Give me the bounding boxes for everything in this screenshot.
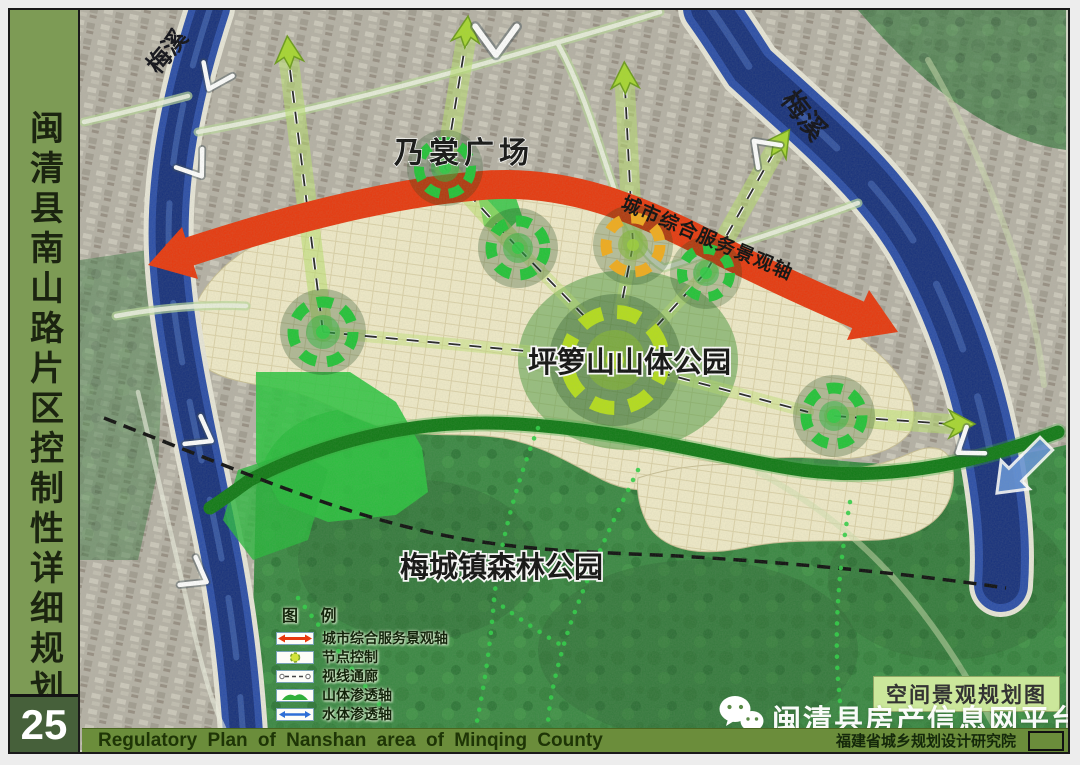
node-circle-icon — [276, 651, 314, 664]
bottom-bar: Regulatory Plan of Nanshan area of Minqi… — [82, 728, 1068, 752]
institute-name: 福建省城乡规划设计研究院 — [836, 729, 1016, 752]
legend-item-sight-corridor: 视线通廊 — [276, 669, 466, 683]
legend-item-label: 视线通廊 — [322, 666, 378, 686]
legend-item-label: 水体渗透轴 — [322, 704, 392, 724]
legend-item-water-axis: 水体渗透轴 — [276, 707, 466, 721]
green-mound-icon — [276, 689, 314, 702]
left-title-bar: 闽清县南山路片区控制性详细规划 25 — [10, 10, 80, 752]
map-area: 城市综合服务景观轴 乃裳广场 坪箩山山体公园 梅城镇森林公园 梅溪 梅溪 图 例… — [80, 10, 1068, 752]
red-double-arrow-icon — [276, 632, 314, 645]
legend-item-node-control: 节点控制 — [276, 650, 466, 664]
legend-item-label: 山体渗透轴 — [322, 685, 392, 705]
end-box — [1028, 731, 1064, 751]
plan-title-vertical: 闽清县南山路片区控制性详细规划 — [20, 110, 69, 710]
legend-item-mountain-axis: 山体渗透轴 — [276, 688, 466, 702]
page-frame: 城市综合服务景观轴 乃裳广场 坪箩山山体公园 梅城镇森林公园 梅溪 梅溪 图 例… — [8, 8, 1070, 754]
english-title: Regulatory Plan of Nanshan area of Minqi… — [98, 729, 603, 752]
planning-map: 城市综合服务景观轴 乃裳广场 坪箩山山体公园 梅城镇森林公园 梅溪 梅溪 — [80, 10, 1066, 750]
map-legend: 图 例 城市综合服务景观轴 节点控制 视线通廊 — [276, 602, 466, 721]
page-number: 25 — [10, 694, 78, 752]
legend-title: 图 例 — [282, 602, 466, 626]
legend-item-label: 节点控制 — [322, 647, 378, 667]
satellite-grain — [80, 10, 1066, 750]
dashed-corridor-icon — [276, 670, 314, 683]
legend-item-label: 城市综合服务景观轴 — [322, 628, 448, 648]
legend-item-city-service-axis: 城市综合服务景观轴 — [276, 631, 466, 645]
blue-arrow-icon — [276, 708, 314, 721]
